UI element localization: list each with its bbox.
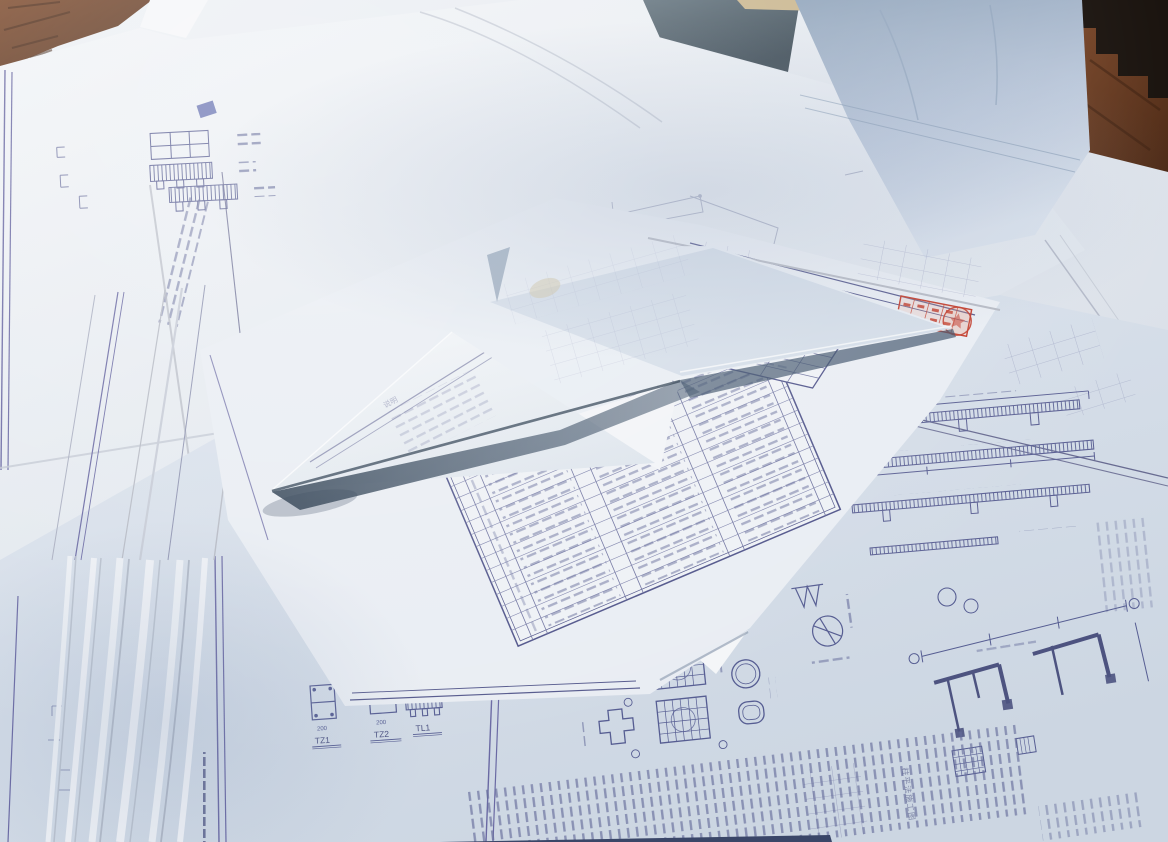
photo-canvas: 柱平法施工图 4.950 400 200 TZ1 200 TZ2	[0, 0, 1168, 842]
blueprints-photo: 柱平法施工图 4.950 400 200 TZ1 200 TZ2	[0, 0, 1168, 842]
soft-shadow-top	[200, 20, 1168, 360]
